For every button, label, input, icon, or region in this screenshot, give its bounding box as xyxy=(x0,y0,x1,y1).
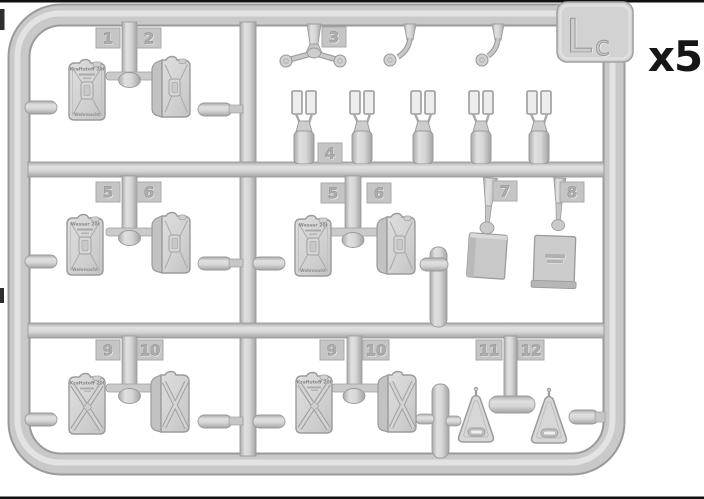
horizontal-runner-upper xyxy=(28,162,604,177)
part-10-left-jerry-can-x xyxy=(151,372,189,433)
sprue-diagram-page: Kraftstoff 20l Wehrmacht Wasser 20l Wehr… xyxy=(0,0,704,499)
svg-text:10: 10 xyxy=(366,342,387,360)
part-3-bracket-b xyxy=(384,24,416,66)
vertical-divider-runner xyxy=(240,22,256,456)
svg-text:1: 1 xyxy=(103,30,113,48)
part-4-clamp-1 xyxy=(292,91,316,164)
part-number-tag-5-left: 5 5 xyxy=(96,182,120,202)
part-number-tag-12: 12 12 xyxy=(518,340,544,360)
part-10-center-jerry-can-x xyxy=(378,372,416,433)
svg-text:6: 6 xyxy=(144,184,154,202)
part-number-tag-11: 11 11 xyxy=(476,340,502,360)
can-label-water: Wasser 20l xyxy=(299,223,328,229)
part-1-jerry-can-fuel: Kraftstoff 20l Wehrmacht xyxy=(69,60,105,121)
svg-text:6: 6 xyxy=(374,185,384,203)
svg-text:9: 9 xyxy=(327,342,337,360)
part-3-brackets xyxy=(280,24,504,67)
part-4-clamp-2 xyxy=(350,91,374,164)
part-number-tag-2: 2 2 xyxy=(137,28,161,48)
can-label-fuel: Kraftstoff 20l xyxy=(70,67,105,73)
part-2-jerry-can xyxy=(152,57,190,118)
svg-text:8: 8 xyxy=(567,184,577,202)
can-label-brand: Wehrmacht xyxy=(74,112,100,117)
part-number-tag-8: 8 8 xyxy=(560,182,584,202)
svg-text:9: 9 xyxy=(103,342,113,360)
part-6-center-jerry-can xyxy=(377,214,415,275)
can-label-brand: Wehrmacht xyxy=(300,268,326,273)
can-label-fuel: Kraftstoff 20l xyxy=(70,381,105,387)
part-3-bracket-c xyxy=(476,24,504,66)
svg-text:10: 10 xyxy=(140,342,161,360)
part-11-funnel xyxy=(459,387,494,442)
part-number-tag-9-left: 9 9 xyxy=(96,340,120,360)
multiplier-label: x5 xyxy=(648,32,702,81)
part-6-left-jerry-can xyxy=(152,213,190,274)
part-9-left-jerry-can-x-fuel: Kraftstoff 20l xyxy=(69,374,105,435)
svg-text:7: 7 xyxy=(500,183,510,201)
part-4-clamp-3 xyxy=(411,91,435,164)
can-label-fuel: Kraftstoff 20l xyxy=(297,380,332,386)
sprue-code-main: L xyxy=(566,9,592,63)
svg-text:2: 2 xyxy=(144,30,154,48)
part-4-clamp-4 xyxy=(469,91,493,164)
horizontal-runner-lower xyxy=(28,323,604,338)
runner-stub-11-12 xyxy=(504,336,517,400)
svg-text:12: 12 xyxy=(521,342,542,360)
part-number-tag-6-center: 6 6 xyxy=(367,183,391,203)
part-5-center-jerry-can-water: Wasser 20l Wehrmacht xyxy=(295,216,331,277)
can-label-brand: Wehrmacht xyxy=(72,267,98,272)
part-number-tag-1: 1 1 xyxy=(96,28,120,48)
sprue-code-sub: c xyxy=(595,31,610,62)
svg-text:4: 4 xyxy=(325,145,335,163)
can-label-water: Wasser 20l xyxy=(71,222,100,228)
part-4-clamp-5 xyxy=(527,91,551,164)
part-12-funnel xyxy=(532,388,567,443)
part-number-tag-10-left: 10 10 xyxy=(137,340,163,360)
part-number-tag-5-center: 5 5 xyxy=(321,183,345,203)
svg-text:3: 3 xyxy=(329,29,339,47)
sprue-corner-tab: L L c c xyxy=(557,2,633,64)
svg-text:11: 11 xyxy=(479,342,500,360)
part-number-tag-9-center: 9 9 xyxy=(320,340,344,360)
part-number-tag-10-center: 10 10 xyxy=(363,340,389,360)
part-number-tag-7: 7 7 xyxy=(493,181,517,201)
svg-text:5: 5 xyxy=(103,184,113,202)
part-9-center-jerry-can-x-fuel: Kraftstoff 20l xyxy=(296,373,332,434)
part-number-tag-4: 4 4 xyxy=(318,143,342,163)
part-number-tag-6-left: 6 6 xyxy=(137,182,161,202)
part-5-left-jerry-can-water: Wasser 20l Wehrmacht xyxy=(67,215,103,276)
part-number-tag-3: 3 3 xyxy=(322,27,346,47)
sprue-diagram: Kraftstoff 20l Wehrmacht Wasser 20l Wehr… xyxy=(0,0,704,499)
svg-text:5: 5 xyxy=(328,185,338,203)
